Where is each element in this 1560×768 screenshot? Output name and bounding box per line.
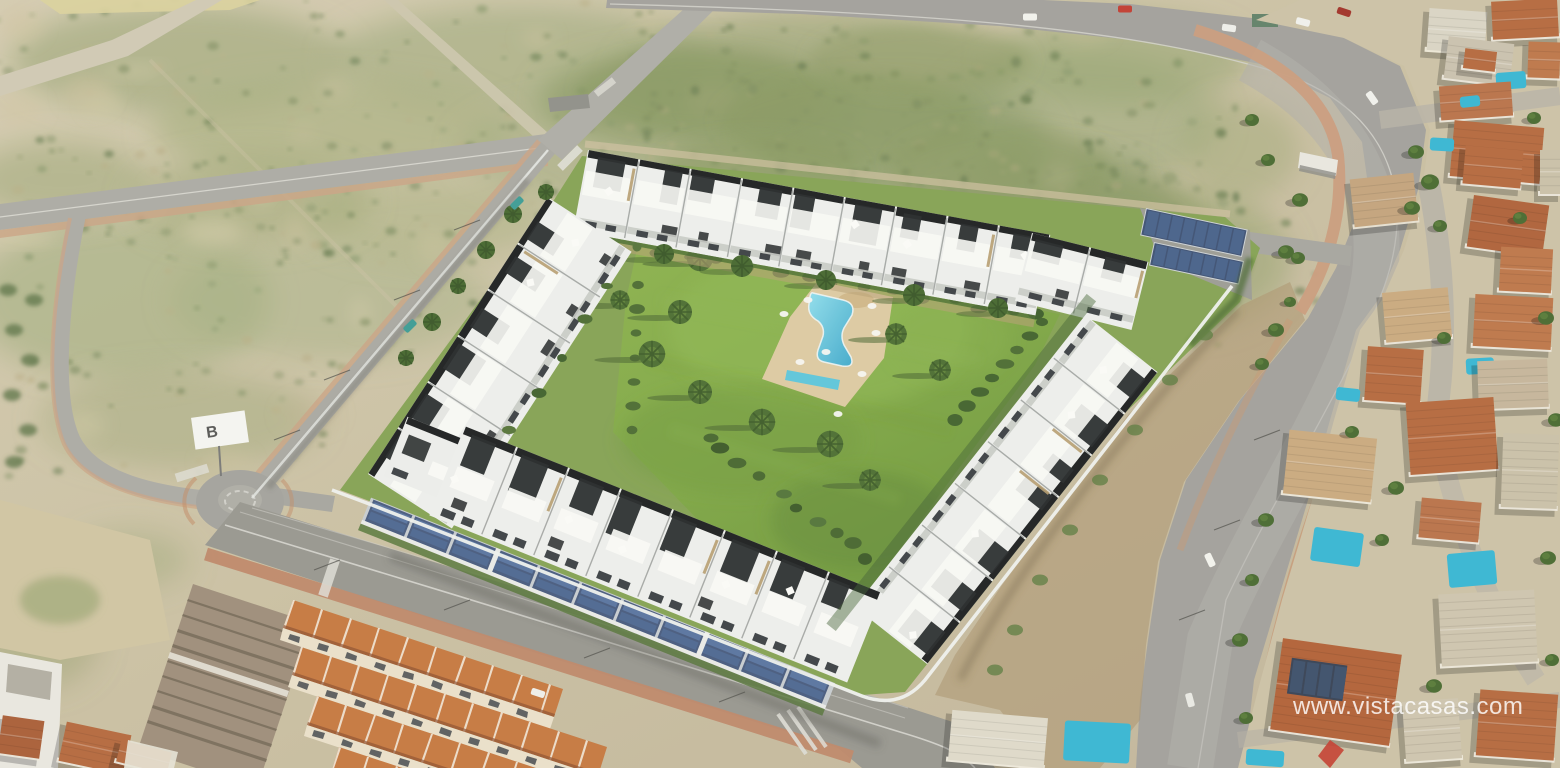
svg-text:www.vistacasas.com: www.vistacasas.com <box>1292 693 1523 720</box>
